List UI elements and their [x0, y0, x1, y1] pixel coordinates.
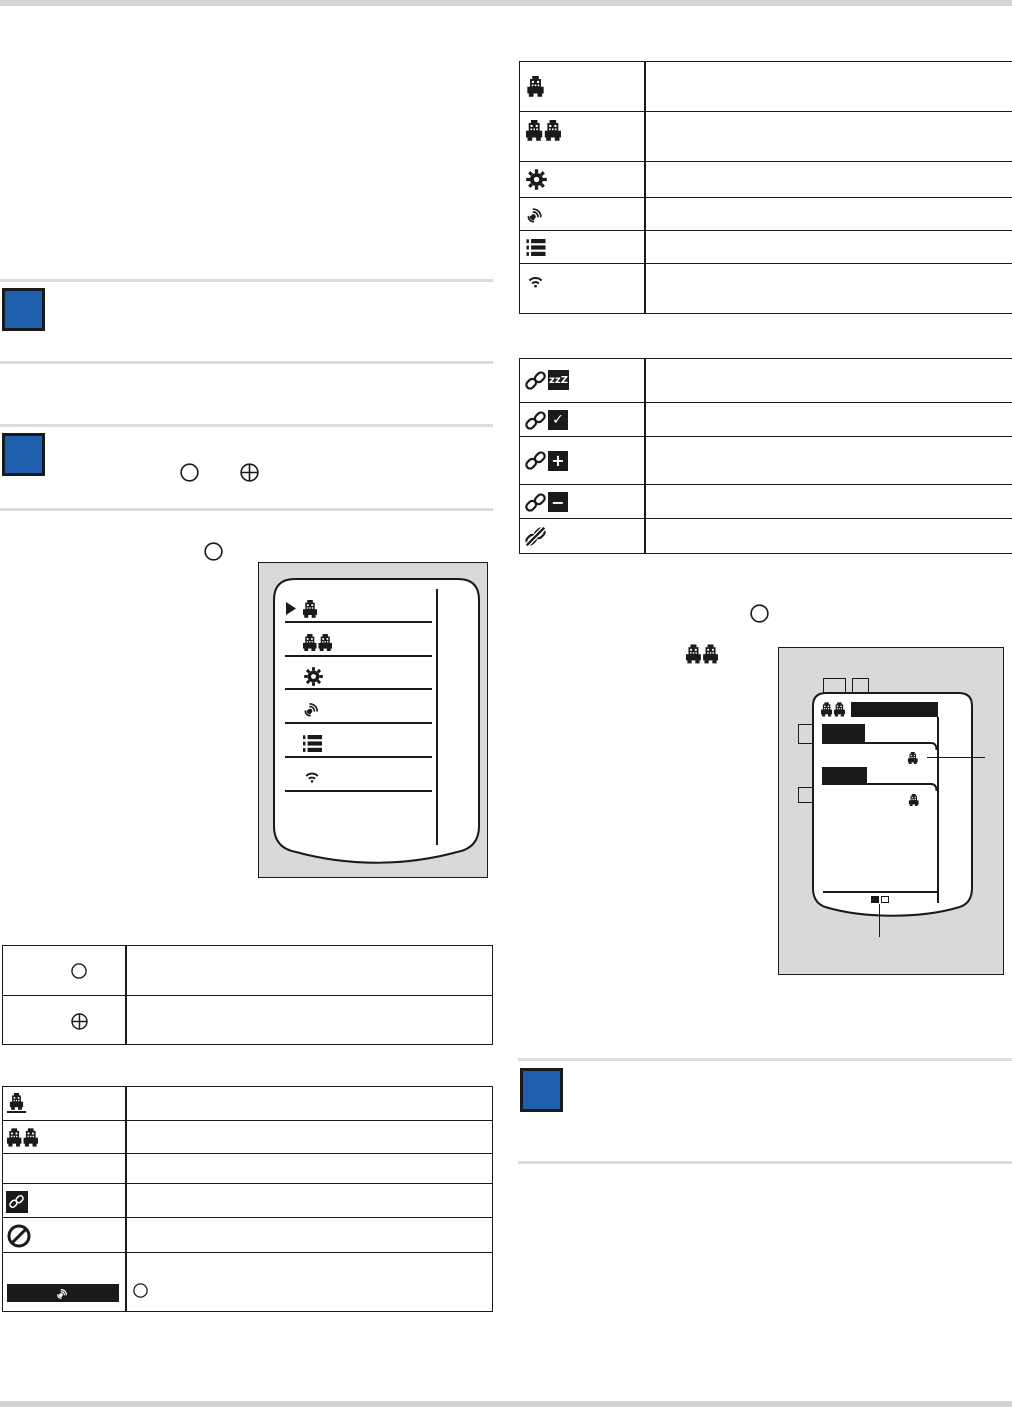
circled-plus-button-icon — [240, 463, 259, 482]
menu-item-remote-pairing-icon — [303, 699, 322, 718]
table-row: zzZ — [520, 359, 1012, 403]
table-row: + — [520, 437, 1012, 485]
wifi-icon — [526, 272, 545, 288]
car-pair-icon — [686, 644, 718, 664]
note-icon — [2, 288, 45, 331]
menu-item-list-icon — [303, 735, 322, 752]
prohibited-icon — [7, 1224, 31, 1248]
link-status-table: zzZ ✓ + − — [519, 358, 1012, 554]
pairing-entry-underline — [822, 783, 938, 792]
add-badge: + — [548, 451, 568, 471]
right-divider-1 — [518, 1058, 1012, 1061]
car-icon — [527, 76, 544, 97]
table-row — [520, 62, 1012, 113]
car-pair-icon — [7, 1128, 38, 1147]
menu-separator — [285, 655, 432, 657]
circle-button-icon — [204, 542, 223, 561]
page-indicator-empty-square — [881, 896, 889, 903]
pairing-entry-car-icon — [908, 794, 920, 807]
pairing-entry-underline — [822, 742, 938, 751]
buttons-table — [2, 945, 493, 1045]
table-row — [3, 1121, 492, 1154]
link-icon — [9, 1194, 24, 1209]
status-legend-table — [2, 1086, 493, 1312]
menu-scrollbar — [436, 589, 438, 845]
add-badge-text: + — [551, 451, 564, 470]
table-row — [520, 198, 1012, 231]
menu-item-wifi-icon — [303, 768, 321, 783]
table-row — [3, 1253, 492, 1313]
menu-separator — [285, 756, 432, 758]
menu-item-gear-icon — [304, 667, 323, 686]
note-icon — [2, 433, 45, 476]
gear-icon — [526, 169, 547, 190]
menu-separator — [285, 790, 432, 792]
pairing-entry-car-icon — [907, 752, 919, 765]
link-inverse-badge — [6, 1191, 28, 1213]
car-selected-icon — [8, 1093, 25, 1110]
table-row — [520, 112, 1012, 162]
menu-item-car-icon — [303, 600, 317, 618]
car-underline — [7, 1111, 26, 1113]
circle-button-icon — [71, 963, 87, 979]
table-row — [520, 519, 1012, 555]
left-divider-1 — [0, 279, 493, 282]
link-icon — [525, 410, 546, 431]
sleep-badge-text: zzZ — [549, 375, 568, 386]
right-divider-2 — [518, 1161, 1012, 1164]
table-row — [3, 996, 492, 1046]
entry-car-callout-line — [927, 757, 986, 759]
table-row — [3, 1154, 492, 1185]
menu-separator — [285, 621, 432, 623]
menu-separator — [285, 722, 432, 724]
pairing-header-bar — [851, 702, 938, 717]
remote-pairing-icon — [56, 1286, 70, 1300]
link-icon — [525, 492, 546, 513]
pairing-screen-right-line — [937, 717, 939, 903]
circle-button-icon — [180, 463, 199, 482]
circled-plus-button-icon — [71, 1013, 88, 1030]
page-bottom-bar — [0, 1401, 1012, 1407]
device-top-button — [823, 678, 846, 693]
left-divider-2 — [0, 361, 493, 364]
left-divider-3 — [0, 424, 493, 427]
pairing-entry-bar — [822, 724, 866, 742]
pairing-header-car-pair-icon — [821, 702, 845, 717]
page-indicator-filled-square — [871, 896, 879, 903]
remove-badge: − — [548, 492, 568, 512]
note-icon — [520, 1068, 563, 1112]
sleep-badge: zzZ — [548, 370, 569, 390]
remove-badge-text: − — [551, 493, 564, 512]
list-icon — [526, 239, 546, 256]
table-row — [520, 162, 1012, 198]
pairing-footer-line — [823, 891, 939, 893]
menu-item-car-pair-icon — [303, 634, 332, 652]
table-row: ✓ — [520, 403, 1012, 438]
table-row — [3, 946, 492, 996]
link-icon — [525, 450, 546, 471]
pairing-entry-bar — [822, 767, 867, 783]
menu-separator — [285, 688, 432, 690]
table-row — [520, 231, 1012, 264]
menu-icons-table — [519, 61, 1012, 314]
left-divider-4 — [0, 508, 493, 511]
table-row — [520, 264, 1012, 315]
circle-button-icon — [750, 604, 769, 623]
manual-page: { "page": {"width": 1012, "height": 1407… — [0, 0, 1012, 1407]
check-badge-text: ✓ — [552, 412, 564, 428]
page-top-bar — [0, 0, 1012, 6]
check-badge: ✓ — [548, 410, 568, 430]
table-row: − — [520, 485, 1012, 519]
table-row — [3, 1087, 492, 1121]
remote-pairing-icon — [526, 204, 546, 224]
car-pair-icon — [526, 120, 561, 141]
link-icon — [525, 370, 546, 391]
pairing-banner — [7, 1284, 119, 1302]
link-off-icon — [524, 525, 547, 548]
table-row — [3, 1218, 492, 1254]
table-row — [3, 1184, 492, 1218]
menu-cursor-icon — [286, 602, 296, 615]
circle-button-icon — [133, 1283, 148, 1298]
device-top-button — [852, 678, 869, 693]
page-indicator-callout-line — [879, 904, 881, 938]
